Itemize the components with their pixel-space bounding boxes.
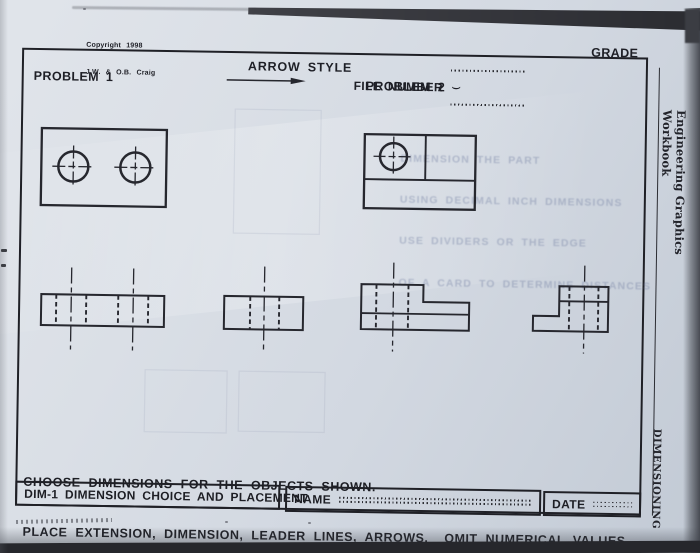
problem2-pen-mark: ⌣ [451, 78, 461, 95]
page-corner-shadow [685, 9, 700, 43]
page-left-edge [0, 0, 8, 553]
scanned-worksheet-page: Copyright 1998 J.W. & O.B. Craig FILE NU… [0, 0, 700, 553]
date-label: DATE [545, 496, 586, 511]
name-dotted-line [339, 495, 532, 508]
sheet-title-block: DIM-1 DIMENSION CHOICE AND PLACEMENT [15, 481, 280, 510]
margin-mark [1, 249, 7, 252]
name-label: NAME [287, 492, 331, 507]
dust-speck [308, 522, 311, 524]
book-fore-edge [683, 8, 700, 553]
margin-mark [1, 264, 6, 267]
date-dotted-line [593, 499, 632, 509]
problem1-label: PROBLEM 1 [34, 69, 114, 84]
problem2-label: PROBLEM 2⌣ [366, 77, 462, 95]
sheet-title: DIM-1 DIMENSION CHOICE AND PLACEMENT [17, 486, 308, 505]
name-field: NAME [285, 486, 541, 516]
chapter-title: DIMENSIONING [650, 429, 663, 529]
date-field: DATE [543, 491, 641, 518]
page-bottom-edge [0, 541, 700, 553]
dust-speck [225, 521, 228, 523]
bleedthrough-ghost-text: DIMENSION THE PART USING DECIMAL INCH DI… [398, 125, 654, 322]
dust-speck [83, 8, 86, 10]
paper-sheet: Copyright 1998 J.W. & O.B. Craig FILE NU… [0, 0, 700, 553]
arrow-style-label: ARROW STYLE [248, 59, 352, 75]
